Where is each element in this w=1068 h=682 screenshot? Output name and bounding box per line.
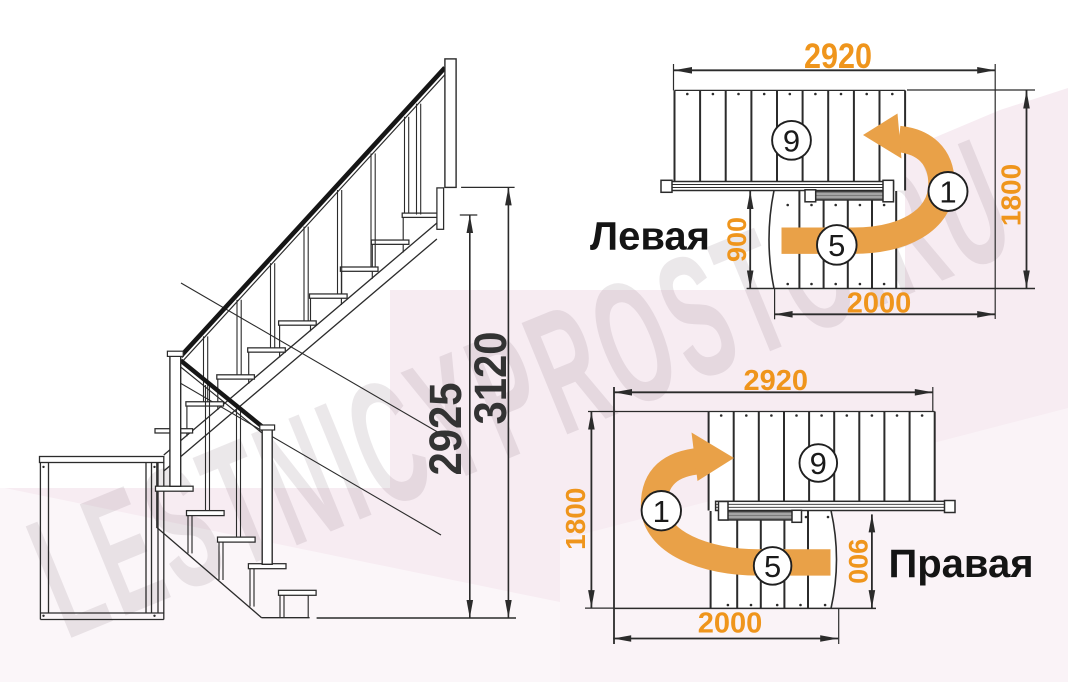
svg-text:5: 5 [828,228,845,263]
svg-text:9: 9 [783,123,800,158]
svg-text:1800: 1800 [995,164,1026,226]
svg-text:1: 1 [939,175,956,210]
svg-text:5: 5 [764,549,781,584]
svg-text:2925: 2925 [420,383,471,476]
svg-text:2920: 2920 [744,365,809,397]
svg-text:900: 900 [722,217,752,262]
svg-text:1800: 1800 [560,488,591,550]
svg-text:Левая: Левая [590,215,710,259]
svg-text:3120: 3120 [465,332,516,425]
svg-text:2920: 2920 [804,37,872,76]
svg-text:2000: 2000 [847,288,912,320]
svg-text:900: 900 [843,539,873,584]
svg-text:Правая: Правая [888,542,1033,586]
svg-text:9: 9 [810,446,827,481]
svg-text:2000: 2000 [698,607,763,639]
svg-text:1: 1 [653,494,670,529]
